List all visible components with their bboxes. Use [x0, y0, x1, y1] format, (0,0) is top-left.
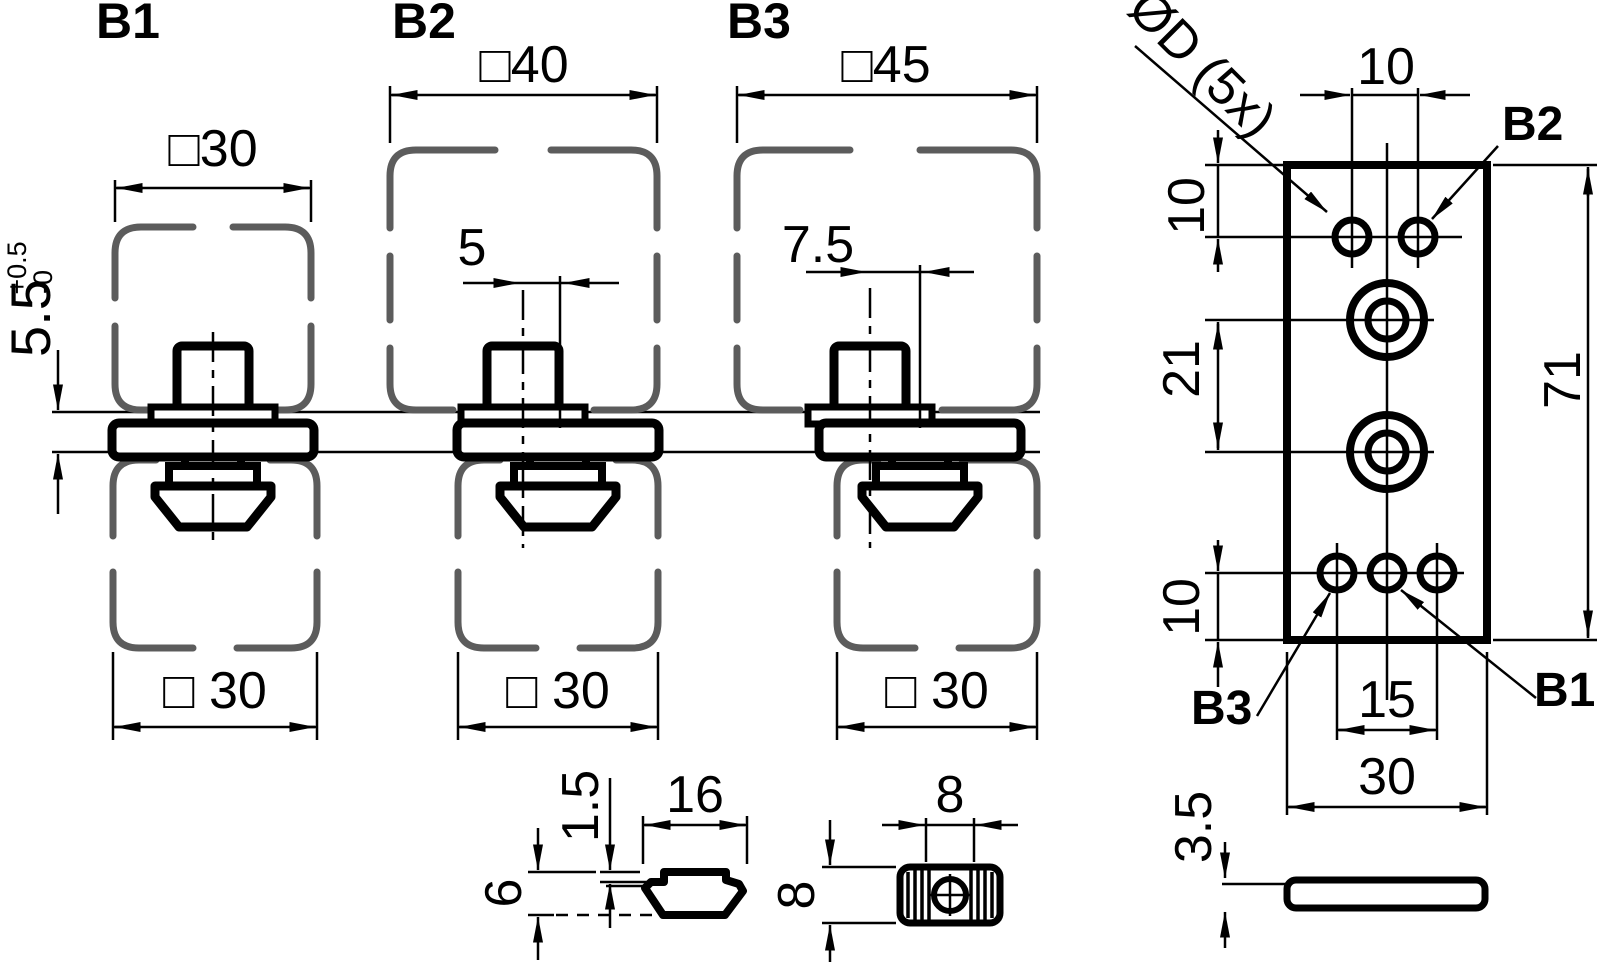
tnut-side-height-dimension: 6	[475, 828, 596, 960]
b3-offset-dim: 7.5	[782, 216, 854, 274]
b1-upper-profile-dim: □30	[168, 120, 257, 178]
tnut-side-lip-dim: 1.5	[552, 770, 610, 842]
tnut-side-width-dim: 16	[666, 766, 724, 824]
plate-ref-b3: B3	[1191, 682, 1252, 735]
plate-counterbore-spacing-dimension: 21	[1153, 322, 1218, 450]
b3-tnut-flange	[862, 486, 978, 527]
plate-bottom-spacing-dim: 15	[1358, 671, 1416, 729]
plate-top-edge-dimension: 10	[1158, 130, 1218, 272]
b2-bottom-dimension: □ 30	[458, 652, 658, 740]
plate-front-view: 10 10 21 10 71	[1117, 0, 1597, 815]
plate-width-dimension: 30	[1287, 748, 1487, 807]
b1-assembly	[112, 332, 314, 548]
plate-thickness-dim: 3.5	[1165, 791, 1223, 863]
b2-top-dimension: □40	[390, 36, 657, 143]
b1-top-dimension: □30	[115, 120, 311, 222]
b2-tnut-flange	[500, 486, 616, 527]
section-b2: □40 5 □ 30 B2	[390, 0, 659, 740]
plate-top-edge-dim: 10	[1158, 177, 1216, 235]
plate-top-spacing-dimension: 10	[1300, 38, 1470, 96]
b1-protrusion-dimension: 5.5 +0.5 -0	[0, 241, 62, 514]
plate-side-outline	[1287, 880, 1485, 908]
section-b3: □45 7.5 □ 30 B3	[727, 0, 1037, 740]
plate-bottom-edge-dimension: 10	[1153, 540, 1218, 687]
b3-section-label: B3	[727, 0, 791, 49]
plate-side-view: 3.5	[1165, 791, 1485, 948]
tnut-front-width-dimension: 8	[882, 766, 1018, 862]
b3-plate	[819, 423, 1021, 457]
tnut-side-height-dim: 6	[475, 879, 533, 908]
b3-upper-profile-dim: □45	[841, 36, 930, 94]
b2-lower-profile-dim: □ 30	[506, 662, 610, 720]
b1-section-label: B1	[96, 0, 160, 49]
tnut-side-lip-dimension: 1.5	[552, 770, 650, 928]
tnut-side-detail: 16 1.5 6	[475, 766, 747, 960]
b3-top-dimension: □45	[737, 36, 1037, 143]
section-b1: □30 5.5 +0.5 -0 □ 30 B1	[0, 0, 317, 740]
b2-offset-dimension: 5	[458, 219, 619, 283]
b1-bottom-dimension: □ 30	[113, 652, 317, 740]
b2-plate	[457, 423, 659, 457]
plate-width-dim: 30	[1358, 748, 1416, 806]
tnut-side-outline	[645, 872, 743, 915]
b3-lower-profile-dim: □ 30	[885, 662, 989, 720]
plate-ref-b2: B2	[1502, 98, 1563, 151]
plate-thickness-dimension: 3.5	[1165, 791, 1225, 948]
technical-drawing-page: □30 5.5 +0.5 -0 □ 30 B1	[0, 0, 1600, 962]
b2-offset-dim: 5	[458, 219, 487, 277]
b2-upper-profile-dim: □40	[479, 36, 568, 94]
tnut-side-width-dimension: 16	[643, 766, 747, 864]
plate-height-dimension: 71	[1534, 167, 1592, 638]
fastener-technical-drawing: □30 5.5 +0.5 -0 □ 30 B1	[0, 0, 1600, 962]
plate-ref-b1: B1	[1534, 664, 1595, 717]
plate-holes-diameter-label: ØD (5x)	[1117, 0, 1287, 149]
b1-lower-profile-dim: □ 30	[163, 662, 267, 720]
plate-counterbore-spacing-dim: 21	[1153, 340, 1211, 398]
tnut-front-height-dimension: 8	[768, 820, 896, 962]
b3-bottom-dimension: □ 30	[837, 652, 1037, 740]
plate-height-dim: 71	[1534, 351, 1592, 409]
plate-bottom-edge-dim: 10	[1153, 578, 1211, 636]
tnut-front-height-dim: 8	[768, 881, 826, 910]
plate-bottom-spacing-dimension: 15	[1337, 671, 1437, 730]
b3-offset-dimension: 7.5	[782, 216, 974, 274]
b1-protrusion-tol-minus: -0	[28, 270, 58, 294]
tnut-front-width-dim: 8	[936, 766, 965, 824]
tnut-front-detail: 8 8	[768, 766, 1018, 962]
b2-section-label: B2	[392, 0, 456, 49]
plate-top-spacing-dim: 10	[1357, 38, 1415, 96]
